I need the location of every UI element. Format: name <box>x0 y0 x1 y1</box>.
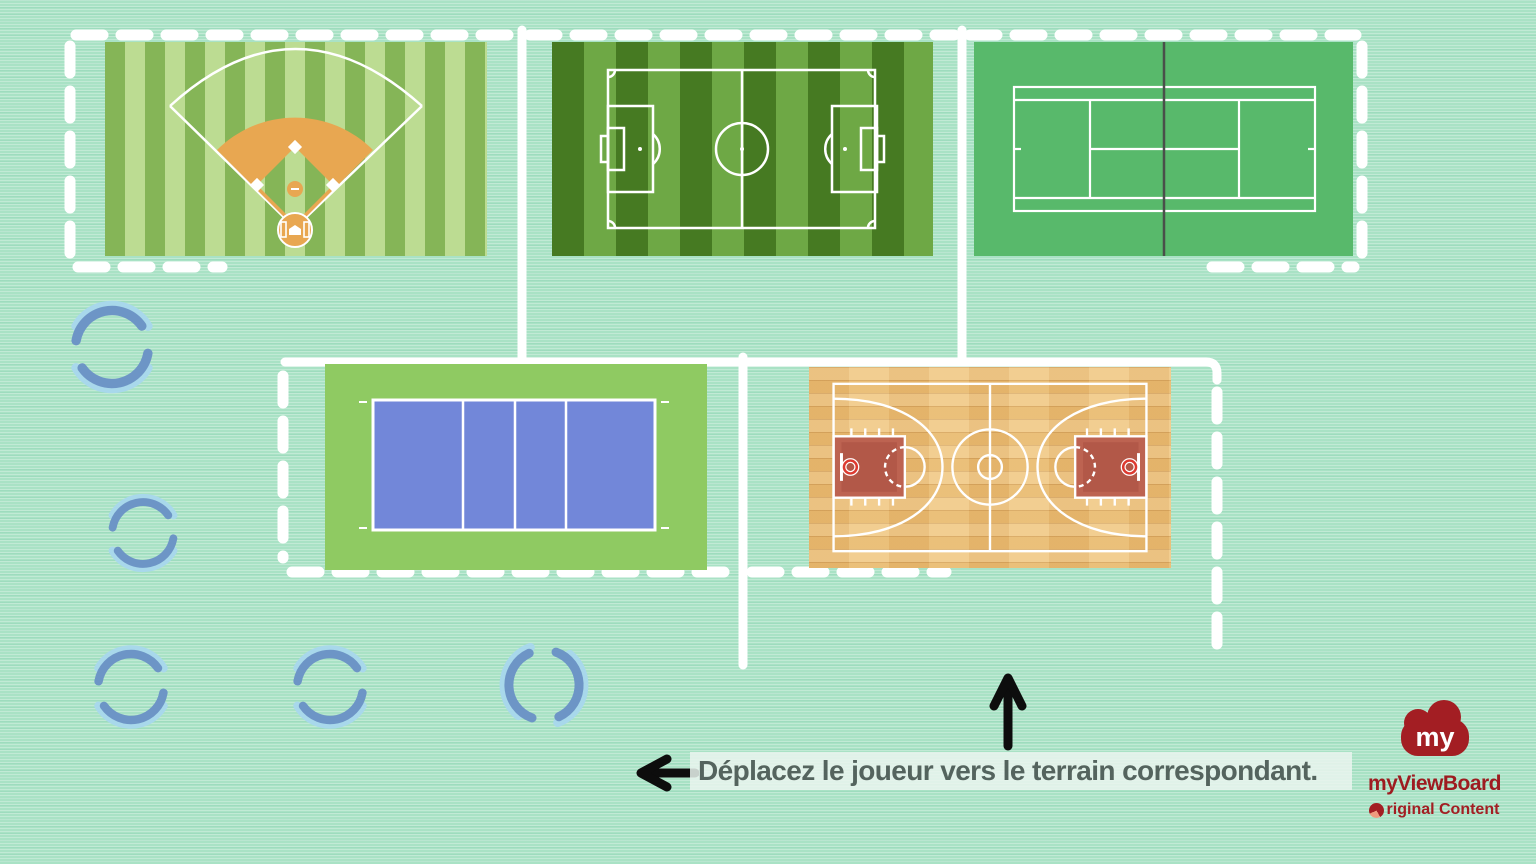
baseball-field-image[interactable] <box>105 42 487 256</box>
loading-spinner-icon[interactable] <box>84 640 178 734</box>
cloud-my-text: my <box>1415 722 1454 752</box>
instruction-text: Déplacez le joueur vers le terrain corre… <box>698 752 1352 790</box>
basketball-court-image[interactable] <box>809 367 1171 568</box>
up-arrow-icon <box>985 668 1031 752</box>
tennis-court-image[interactable] <box>974 42 1353 256</box>
loading-spinner-icon[interactable] <box>60 295 164 399</box>
loading-spinner-icon[interactable] <box>283 640 377 734</box>
original-content-label: riginal Content <box>1368 801 1500 819</box>
loading-spinner-icon[interactable] <box>99 489 187 577</box>
loading-spinner-icon[interactable] <box>486 627 602 743</box>
original-content-text: riginal Content <box>1387 801 1500 819</box>
myviewboard-cloud-logo: my <box>1398 698 1472 758</box>
volleyball-court-image[interactable] <box>325 364 707 570</box>
o-disc-icon <box>1369 803 1384 818</box>
whiteboard-canvas: Déplacez le joueur vers le terrain corre… <box>0 0 1536 864</box>
myviewboard-wordmark: myViewBoard <box>1368 772 1500 796</box>
soccer-field-image[interactable] <box>552 42 933 256</box>
